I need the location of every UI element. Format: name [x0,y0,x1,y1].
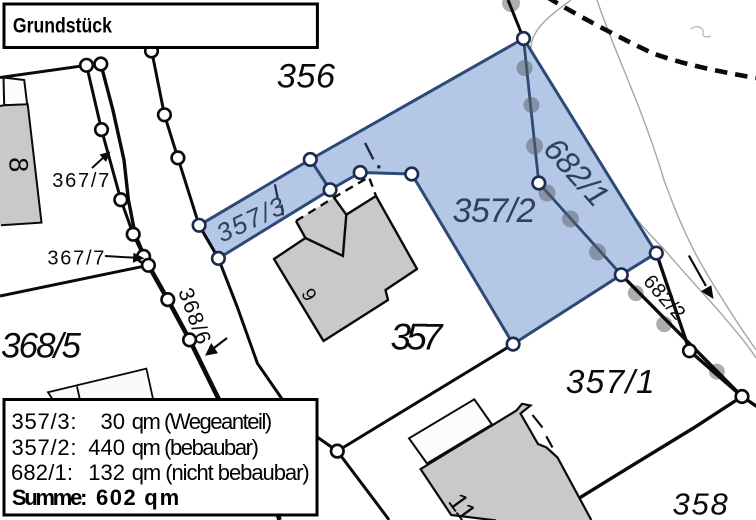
svg-text:357: 357 [391,317,444,358]
svg-text:356: 356 [277,58,336,96]
svg-text:357/1: 357/1 [566,364,655,401]
svg-text:357/2: 357/2 [453,192,536,230]
svg-text:Grundstück: Grundstück [13,14,112,37]
svg-text:440: 440 [88,435,125,460]
svg-text:367/7: 367/7 [47,248,104,270]
svg-text:368/5: 368/5 [1,327,82,366]
svg-text:qm (Wegeanteil): qm (Wegeanteil) [132,409,273,434]
svg-text:qm (nicht bebaubar): qm (nicht bebaubar) [132,460,310,485]
svg-text:682/1:: 682/1: [11,460,73,485]
svg-text:132: 132 [88,460,125,485]
svg-text:602: 602 [96,485,137,510]
svg-text:30: 30 [101,409,125,434]
svg-text:367/7: 367/7 [52,170,109,192]
svg-text:qm (bebaubar): qm (bebaubar) [132,435,259,460]
svg-text:qm: qm [144,485,181,510]
svg-text:357/2:: 357/2: [12,435,77,460]
svg-text:Summe:: Summe: [12,485,88,510]
svg-text:357/3:: 357/3: [12,409,77,434]
svg-text:358: 358 [673,487,729,520]
svg-text:8: 8 [4,157,34,172]
